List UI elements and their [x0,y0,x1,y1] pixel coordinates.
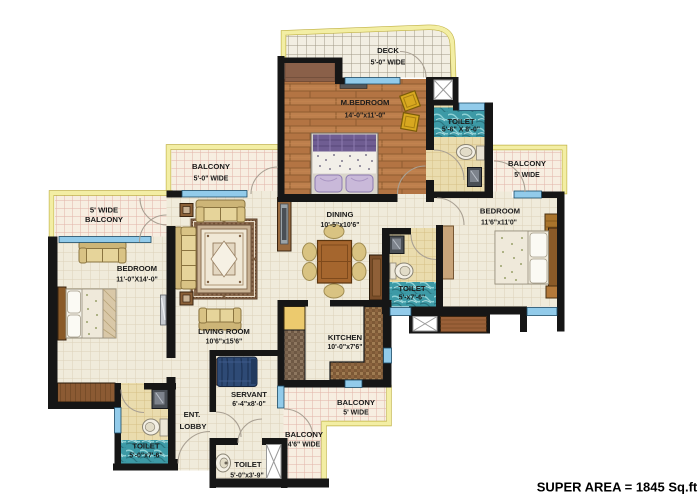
svg-text:6'-4"x8'-0": 6'-4"x8'-0" [232,401,266,408]
svg-text:DECK: DECK [377,46,399,55]
svg-text:BALCONY: BALCONY [85,215,123,224]
svg-text:BALCONY: BALCONY [337,398,375,407]
svg-text:5' WIDE: 5' WIDE [343,410,369,417]
svg-text:LIVING ROOM: LIVING ROOM [198,327,250,336]
svg-text:TOILET: TOILET [132,442,159,451]
svg-text:KITCHEN: KITCHEN [328,333,363,342]
svg-text:SERVANT: SERVANT [231,390,267,399]
svg-text:5'-x7'-6": 5'-x7'-6" [399,295,425,302]
svg-text:BEDROOM: BEDROOM [480,207,520,216]
svg-text:5'-0" WIDE: 5'-0" WIDE [371,60,406,67]
svg-text:5'-6" X 8'-0": 5'-6" X 8'-0" [442,127,480,134]
svg-text:5'-0"x3'-9": 5'-0"x3'-9" [230,473,264,480]
svg-text:5' WIDE: 5' WIDE [90,206,118,215]
svg-text:BALCONY: BALCONY [192,162,230,171]
svg-text:BALCONY: BALCONY [285,430,323,439]
svg-text:LOBBY: LOBBY [180,422,207,431]
svg-text:M.BEDROOM: M.BEDROOM [341,98,390,107]
svg-text:BEDROOM: BEDROOM [117,264,157,273]
svg-text:10'6"x15'6": 10'6"x15'6" [206,339,243,346]
svg-text:TOILET: TOILET [447,117,474,126]
svg-text:10'-0"x7'6": 10'-0"x7'6" [327,344,362,351]
svg-text:14'-0"x11'-0": 14'-0"x11'-0" [345,113,386,120]
svg-text:ENT.: ENT. [184,410,201,419]
svg-text:DINING: DINING [327,210,354,219]
svg-text:11'-0"X14'-0": 11'-0"X14'-0" [116,277,158,284]
svg-text:11'6"x11'0": 11'6"x11'0" [481,220,517,227]
svg-text:4'6" WIDE: 4'6" WIDE [288,442,321,449]
svg-text:TOILET: TOILET [398,284,425,293]
svg-text:5' WIDE: 5' WIDE [514,172,540,179]
svg-text:10'-5"x10'6": 10'-5"x10'6" [321,222,360,229]
svg-text:5'-0" WIDE: 5'-0" WIDE [194,176,229,183]
svg-text:TOILET: TOILET [234,460,261,469]
svg-text:BALCONY: BALCONY [508,159,546,168]
svg-text:SUPER AREA = 1845 Sq.ft: SUPER AREA = 1845 Sq.ft [537,480,698,495]
svg-text:5'-0"x7'-6": 5'-0"x7'-6" [129,453,163,460]
